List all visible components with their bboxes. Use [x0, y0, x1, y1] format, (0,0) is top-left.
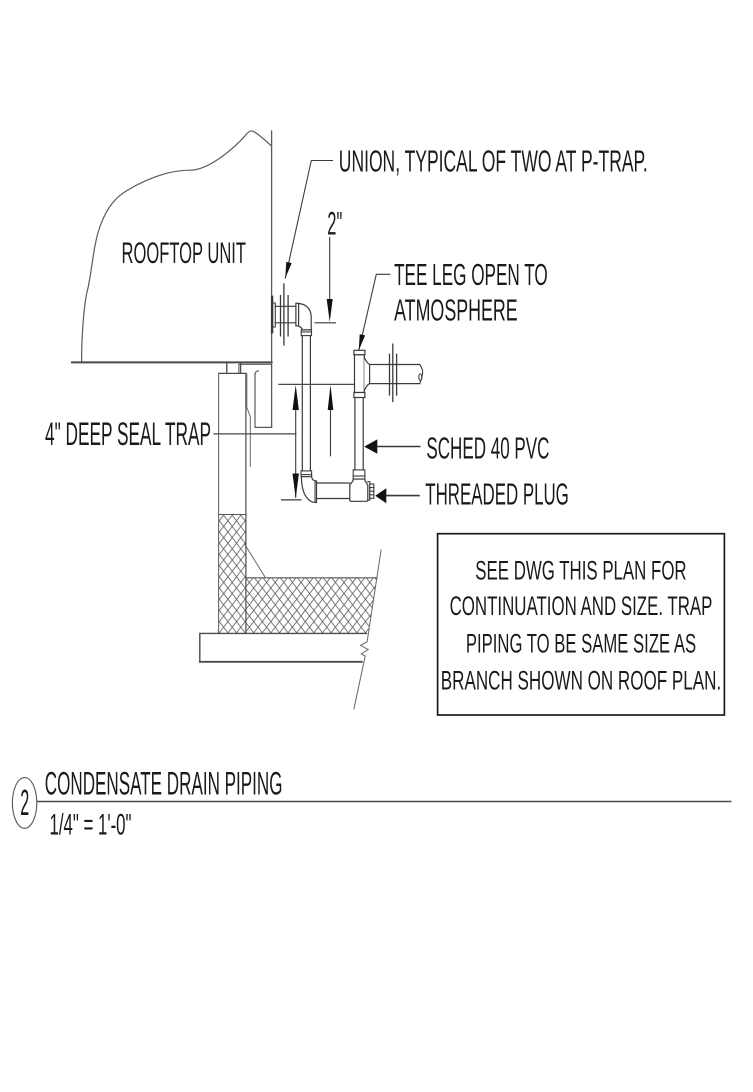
- svg-text:CONDENSATE DRAIN PIPING: CONDENSATE DRAIN PIPING: [45, 766, 283, 802]
- svg-text:CONTINUATION AND SIZE. TRAP: CONTINUATION AND SIZE. TRAP: [450, 591, 713, 621]
- svg-text:BRANCH SHOWN ON ROOF PLAN.: BRANCH SHOWN ON ROOF PLAN.: [441, 665, 721, 695]
- svg-text:PIPING TO BE SAME SIZE AS: PIPING TO BE SAME SIZE AS: [466, 629, 696, 659]
- svg-text:TEE LEG OPEN TO: TEE LEG OPEN TO: [394, 257, 548, 292]
- svg-text:ATMOSPHERE: ATMOSPHERE: [394, 293, 518, 328]
- svg-text:SEE DWG THIS PLAN FOR: SEE DWG THIS PLAN FOR: [475, 555, 686, 585]
- svg-text:ROOFTOP UNIT: ROOFTOP UNIT: [122, 237, 247, 270]
- svg-text:2": 2": [327, 206, 342, 242]
- svg-text:THREADED PLUG: THREADED PLUG: [425, 476, 569, 511]
- svg-text:UNION, TYPICAL OF TWO AT P-TRA: UNION, TYPICAL OF TWO AT P-TRAP.: [339, 144, 648, 179]
- svg-text:1/4" = 1'-0": 1/4" = 1'-0": [50, 809, 132, 842]
- svg-text:4" DEEP SEAL TRAP: 4" DEEP SEAL TRAP: [45, 416, 211, 452]
- svg-text:2: 2: [20, 782, 29, 823]
- svg-text:SCHED 40 PVC: SCHED 40 PVC: [426, 431, 549, 466]
